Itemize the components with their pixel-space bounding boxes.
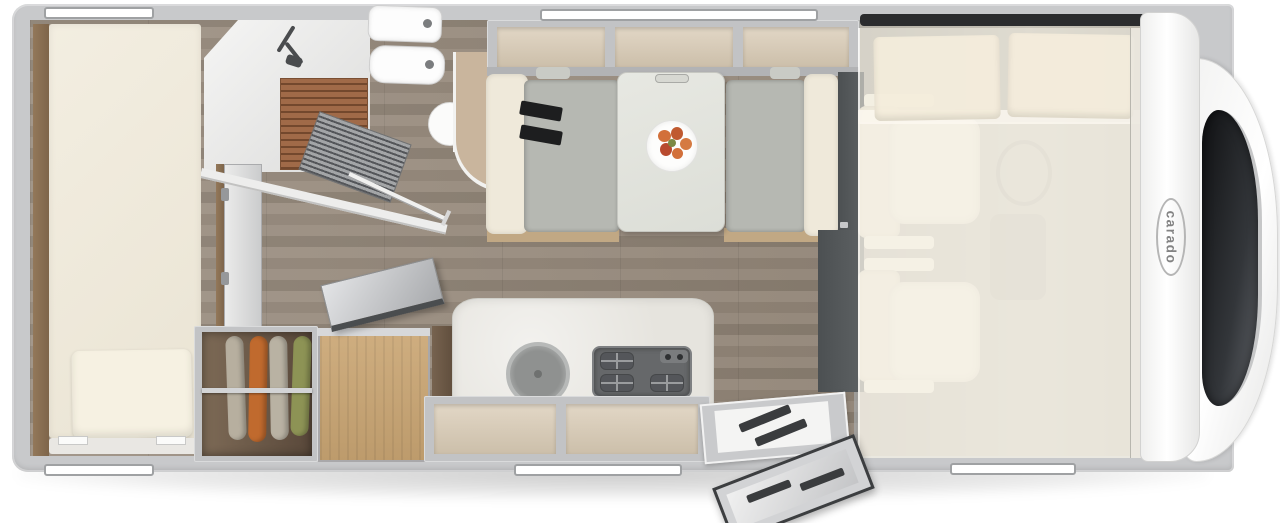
motorhome-floorplan: carado <box>0 0 1280 523</box>
table-notch <box>655 74 689 83</box>
cabinet-latch-icon <box>840 222 848 228</box>
rear-bed-pillow <box>71 349 193 439</box>
food-icon <box>671 127 683 140</box>
bench-backrest-left <box>486 74 528 234</box>
hob-knob <box>665 354 671 360</box>
locker-compartment <box>743 27 849 67</box>
window <box>514 464 682 476</box>
window <box>950 463 1076 475</box>
bed-foot <box>156 436 186 445</box>
bench-backrest-right <box>804 74 838 236</box>
window <box>44 7 154 19</box>
windshield <box>1202 110 1262 406</box>
burner <box>600 352 634 370</box>
washbasin-faucet-icon <box>423 19 432 28</box>
locker-compartment <box>615 27 733 67</box>
bed-side-trim <box>33 24 49 456</box>
cabinet-compartment <box>434 404 556 454</box>
headrest-left <box>536 67 570 79</box>
window <box>44 464 154 476</box>
windshield-top-edge <box>860 14 1146 26</box>
bed-foot <box>58 436 88 445</box>
burner <box>600 374 634 392</box>
food-icon <box>668 139 676 147</box>
food-icon <box>680 138 692 150</box>
garment <box>290 336 311 437</box>
bed-pillow <box>1007 33 1134 119</box>
hob-knob <box>677 354 683 360</box>
bench-seat-right <box>726 80 806 232</box>
cabinet-compartment <box>566 404 698 454</box>
locker-compartment <box>497 27 605 67</box>
toilet-flush-icon <box>425 60 434 69</box>
door-hinge <box>221 272 229 285</box>
brand-logo-text: carado <box>1164 210 1179 264</box>
door-hinge <box>221 188 229 201</box>
headrest-right <box>770 67 800 79</box>
bed-pillow <box>873 35 1000 121</box>
sink-drain-icon <box>534 370 542 378</box>
food-icon <box>672 148 683 159</box>
burner <box>650 374 684 392</box>
kitchen-side-panel <box>432 326 454 404</box>
bed-sheet <box>858 122 1140 458</box>
window <box>540 9 818 21</box>
brand-logo: carado <box>1156 198 1186 276</box>
toilet <box>368 45 445 86</box>
chest-body <box>318 328 430 462</box>
wardrobe-rail <box>202 388 312 393</box>
